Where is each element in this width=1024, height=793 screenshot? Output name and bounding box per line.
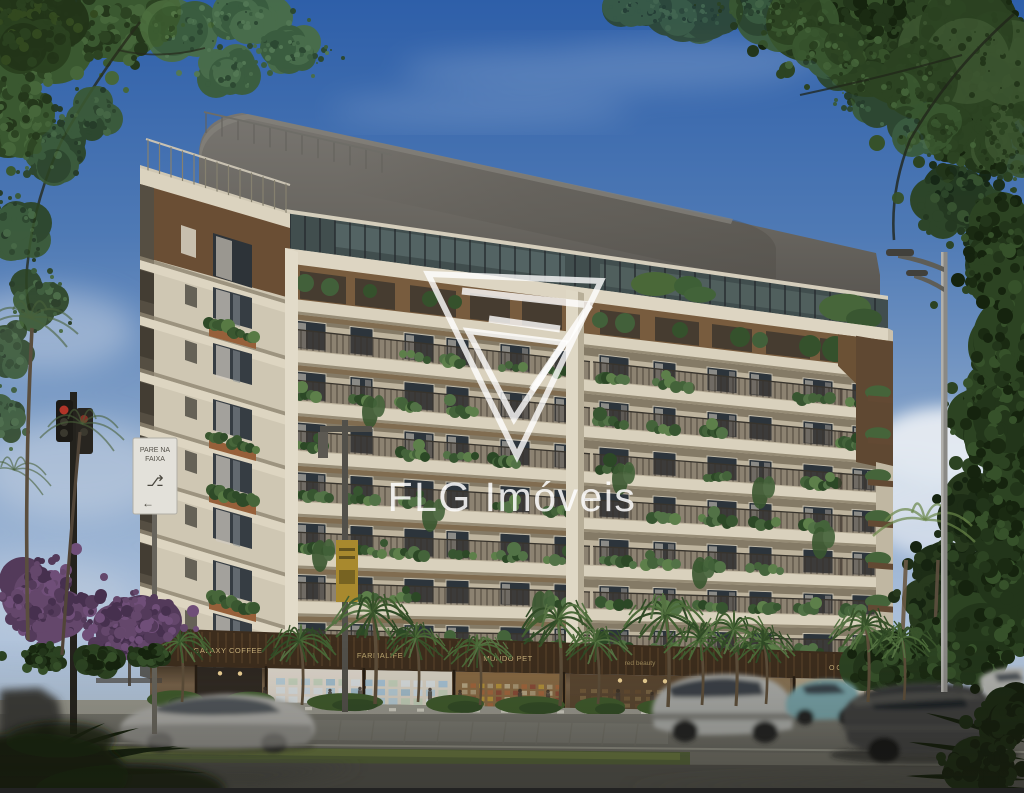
svg-text:⎇: ⎇ [146, 473, 163, 490]
svg-text:←: ← [142, 496, 154, 510]
svg-text:FAIXA: FAIXA [145, 456, 165, 463]
svg-text:PARE NA: PARE NA [140, 447, 171, 454]
